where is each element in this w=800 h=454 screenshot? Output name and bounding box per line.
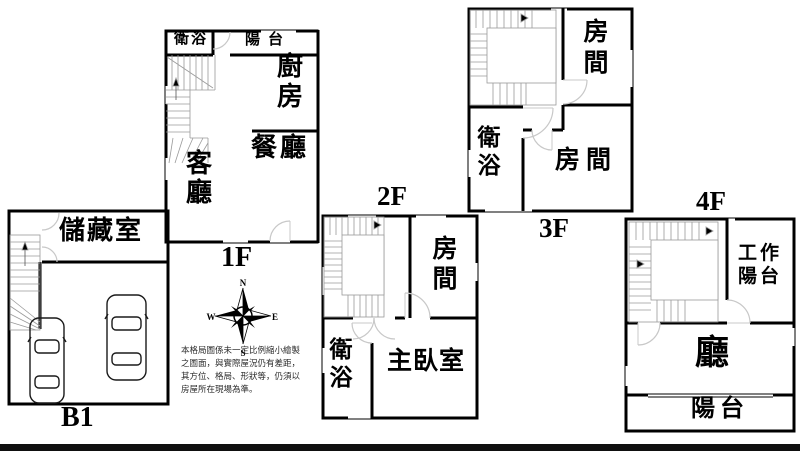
room-label-room-2f: 房間 (430, 234, 460, 294)
compass-letter-e: E (272, 312, 278, 322)
staircase-icon (324, 217, 384, 317)
floor-label-b1: B1 (61, 402, 94, 434)
room-label-living: 客廳 (184, 150, 214, 208)
room-label-bath-1f: 衛浴 (167, 31, 215, 47)
room-label-work-balcony: 工作陽台 (736, 242, 784, 288)
staircase-icon (470, 10, 556, 105)
door-swing-arc (523, 80, 587, 150)
compass-letter-n: N (240, 278, 247, 288)
disclaimer-line-1: 本格局圖係未一定比例縮小繪製 (181, 345, 311, 358)
car-icon (28, 318, 66, 403)
room-label-bath-2f: 衛浴 (327, 336, 355, 392)
floor-label-4f: 4F (696, 186, 726, 217)
stair-direction-arrow (706, 227, 713, 235)
disclaimer-line-3: 其方位、格局、形狀等，仍須以 (181, 371, 311, 384)
car-icon (105, 295, 148, 380)
staircase-icon (629, 222, 718, 322)
door-swing-arc (352, 293, 430, 343)
disclaimer-line-4: 房屋所在現場為準。 (181, 384, 311, 397)
floor-label-3f: 3F (539, 213, 569, 244)
stair-direction-arrow (374, 221, 381, 229)
stair-direction-arrow (521, 14, 528, 22)
room-label-master-bedroom: 主臥室 (385, 348, 467, 374)
room-label-room-3f-bottom: 房間 (551, 147, 621, 173)
room-label-balcony-1f: 陽台 (239, 32, 297, 48)
footer-bar (0, 444, 800, 451)
floor-label-1f: 1F (221, 242, 252, 274)
room-label-balcony-4f: 陽台 (691, 395, 743, 420)
floorplan-sheet: 衛浴 陽台 廚房 餐廳 客廳 1F (0, 0, 800, 454)
room-label-storage: 儲藏室 (54, 218, 148, 245)
room-label-kitchen: 廚房 (275, 52, 305, 112)
staircase-icon (10, 235, 40, 330)
compass-letter-w: W (207, 312, 216, 322)
room-label-dining: 餐廳 (248, 135, 312, 162)
staircase-icon (166, 55, 215, 163)
disclaimer-text: 本格局圖係未一定比例縮小繪製 之圖面，與實際屋況仍有差距， 其方位、格局、形狀等… (181, 345, 311, 397)
stair-direction-arrow (22, 242, 28, 250)
disclaimer-line-2: 之圖面，與實際屋況仍有差距， (181, 358, 311, 371)
room-label-room-3f-top: 房間 (581, 16, 611, 78)
floor-label-2f: 2F (377, 181, 407, 212)
room-label-hall: 廳 (695, 336, 729, 372)
room-label-bath-3f: 衛浴 (475, 124, 503, 180)
